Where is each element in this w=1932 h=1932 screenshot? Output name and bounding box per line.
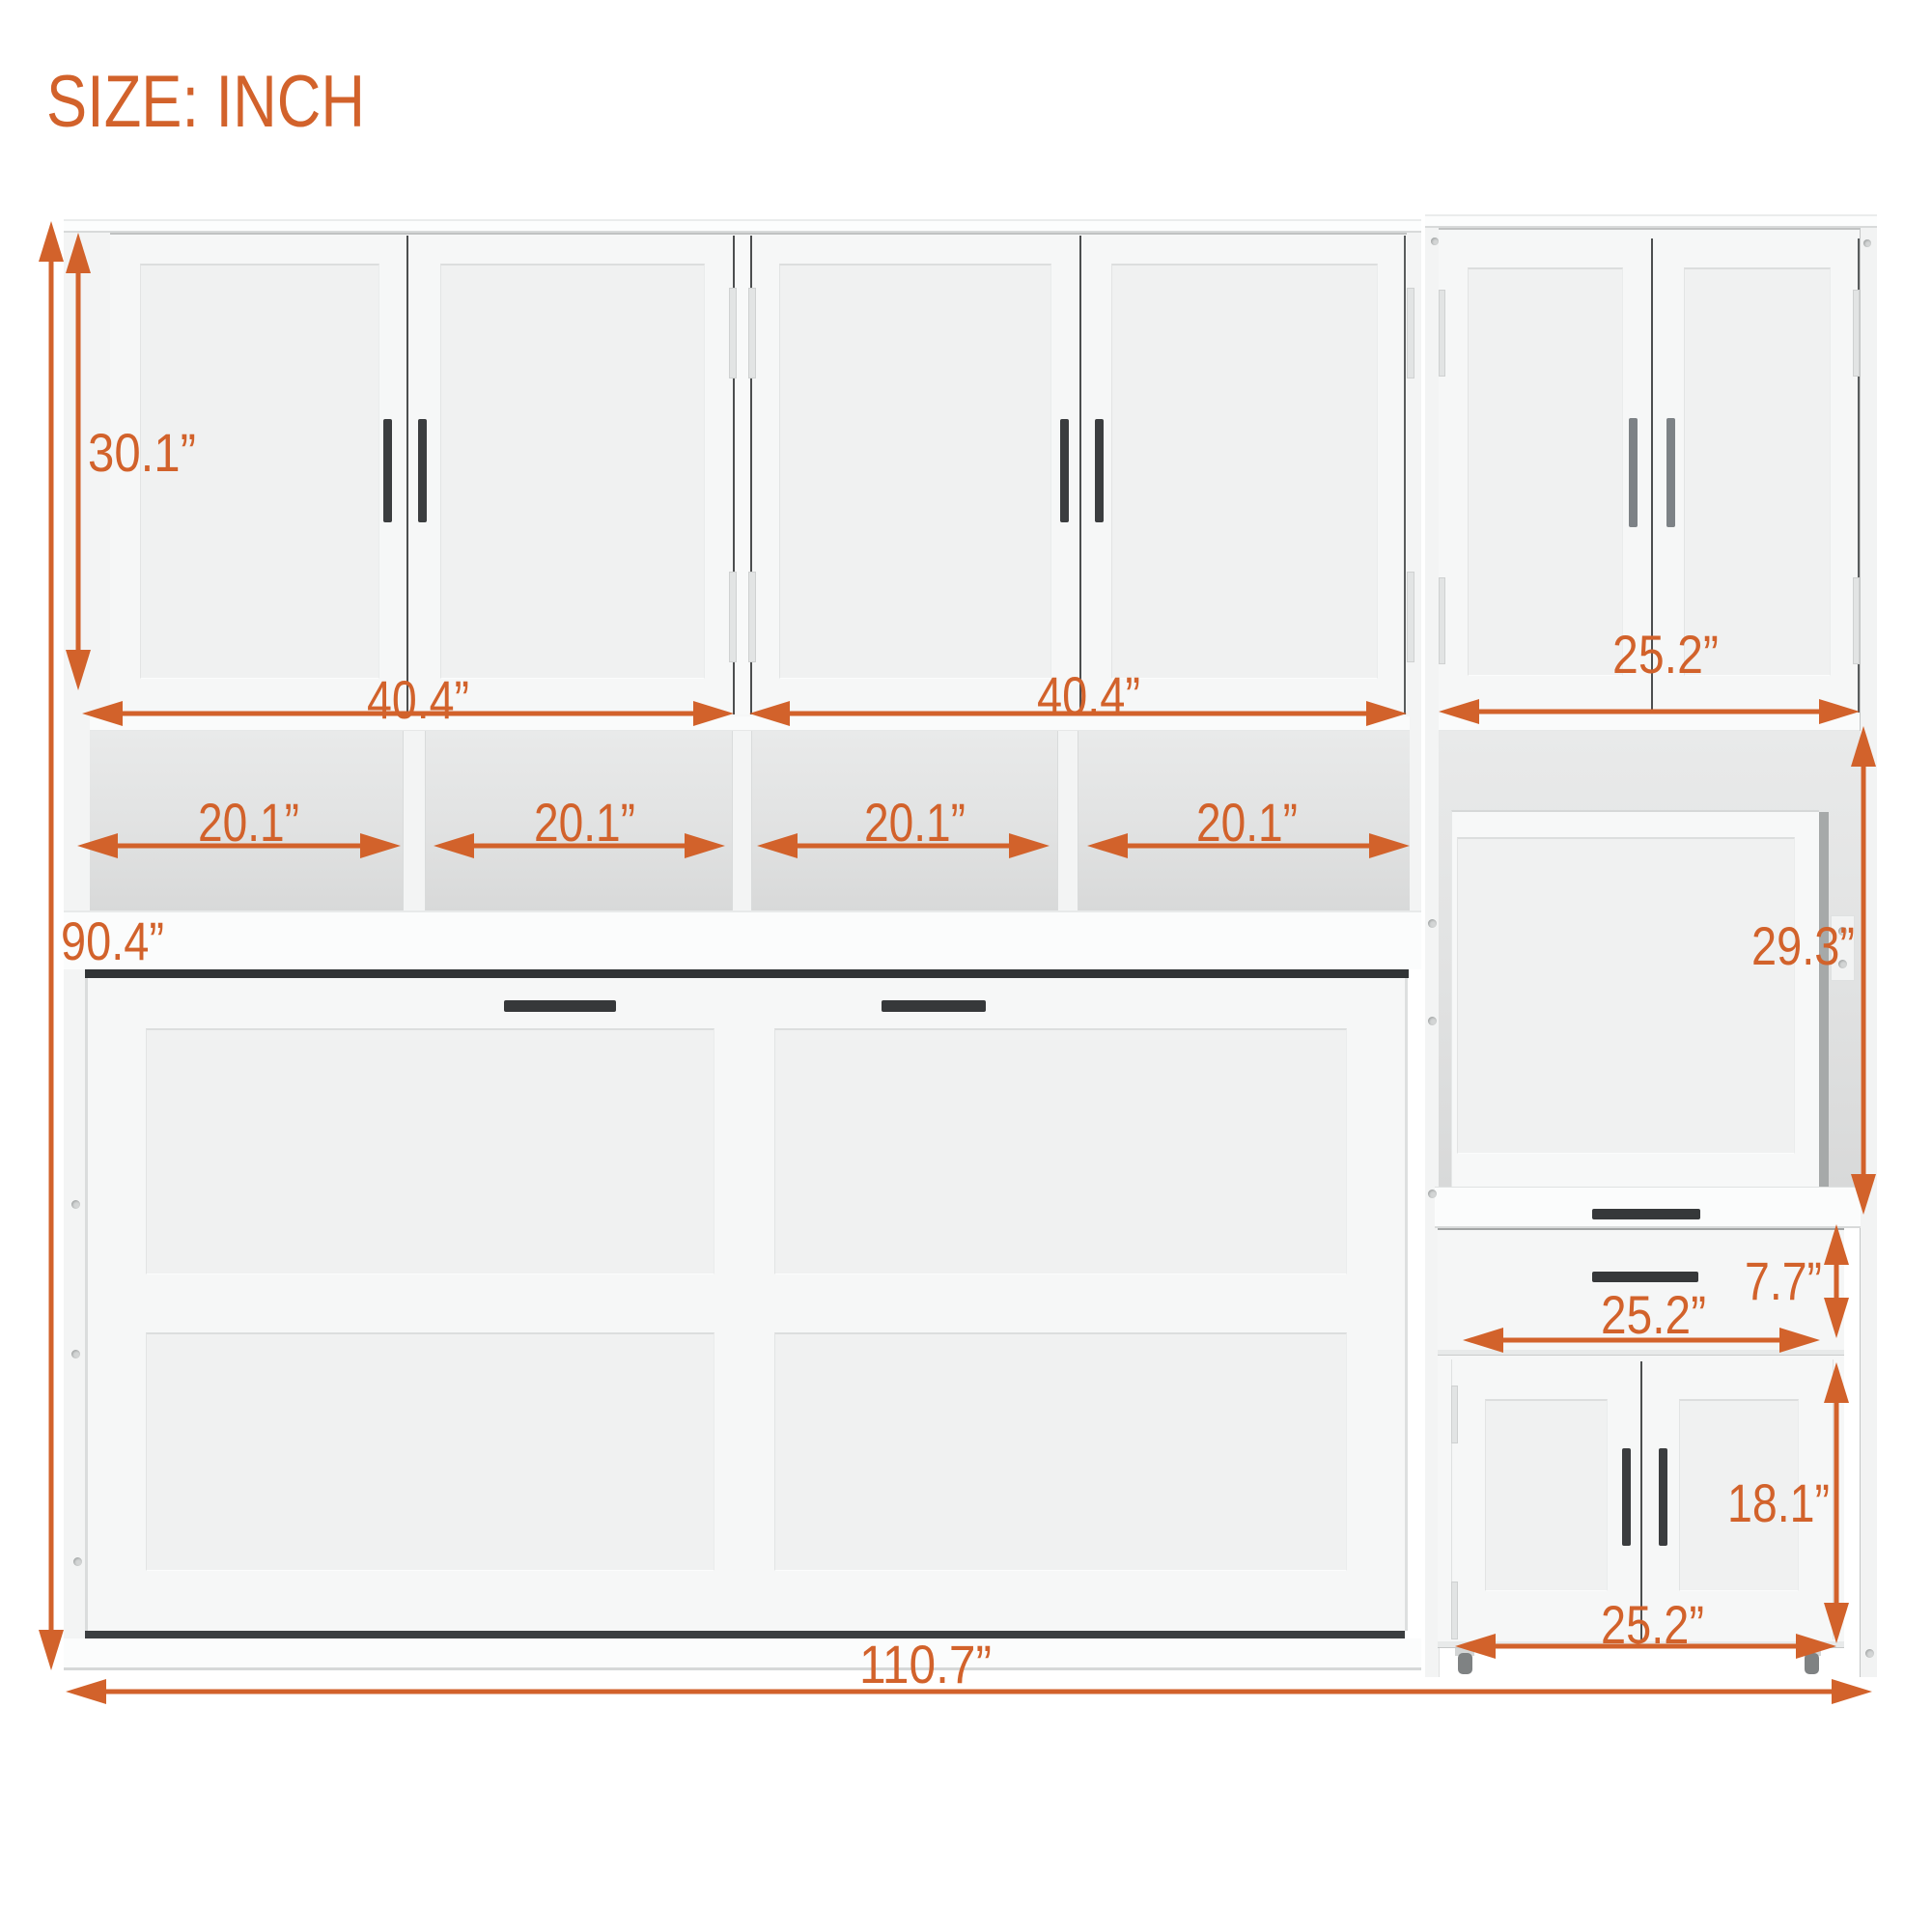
svg-text:20.1”: 20.1” [534, 792, 635, 853]
svg-text:25.2”: 25.2” [1612, 624, 1719, 685]
svg-text:20.1”: 20.1” [198, 792, 299, 853]
svg-text:18.1”: 18.1” [1727, 1472, 1830, 1533]
svg-text:29.3”: 29.3” [1751, 915, 1855, 976]
svg-text:SIZE: INCH: SIZE: INCH [46, 61, 365, 143]
svg-text:40.4”: 40.4” [367, 669, 469, 730]
svg-text:110.7”: 110.7” [859, 1634, 992, 1694]
svg-text:90.4”: 90.4” [61, 910, 164, 971]
svg-text:20.1”: 20.1” [864, 792, 966, 853]
svg-text:25.2”: 25.2” [1601, 1594, 1704, 1655]
svg-text:20.1”: 20.1” [1196, 792, 1298, 853]
svg-text:25.2”: 25.2” [1601, 1284, 1706, 1345]
svg-text:7.7”: 7.7” [1745, 1250, 1822, 1311]
svg-text:40.4”: 40.4” [1037, 665, 1140, 726]
svg-text:30.1”: 30.1” [88, 422, 196, 483]
